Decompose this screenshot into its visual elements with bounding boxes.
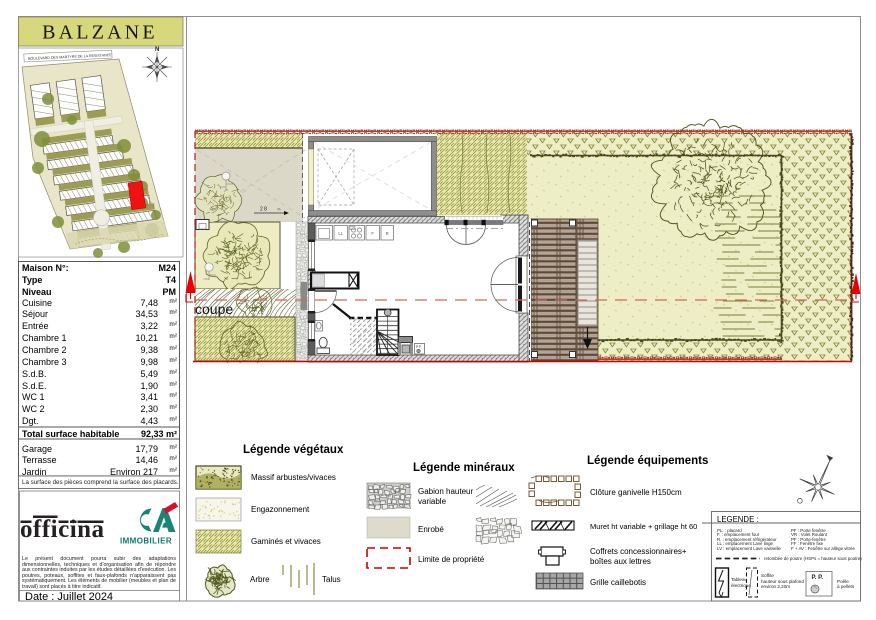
svg-text:2 8: 2 8 — [260, 207, 267, 213]
svg-text:P.P.: P.P. — [416, 345, 422, 349]
svg-text:LL: LL — [338, 231, 343, 236]
svg-text:%: % — [277, 207, 281, 212]
svg-text:R: R — [386, 231, 389, 236]
svg-text:coupe: coupe — [195, 301, 233, 317]
svg-text:officina: officina — [20, 516, 105, 543]
svg-text:F: F — [371, 231, 374, 236]
svg-text:BALZANE: BALZANE — [42, 22, 158, 44]
svg-text:IMMOBILIER: IMMOBILIER — [120, 537, 172, 546]
svg-text:N: N — [155, 47, 159, 53]
